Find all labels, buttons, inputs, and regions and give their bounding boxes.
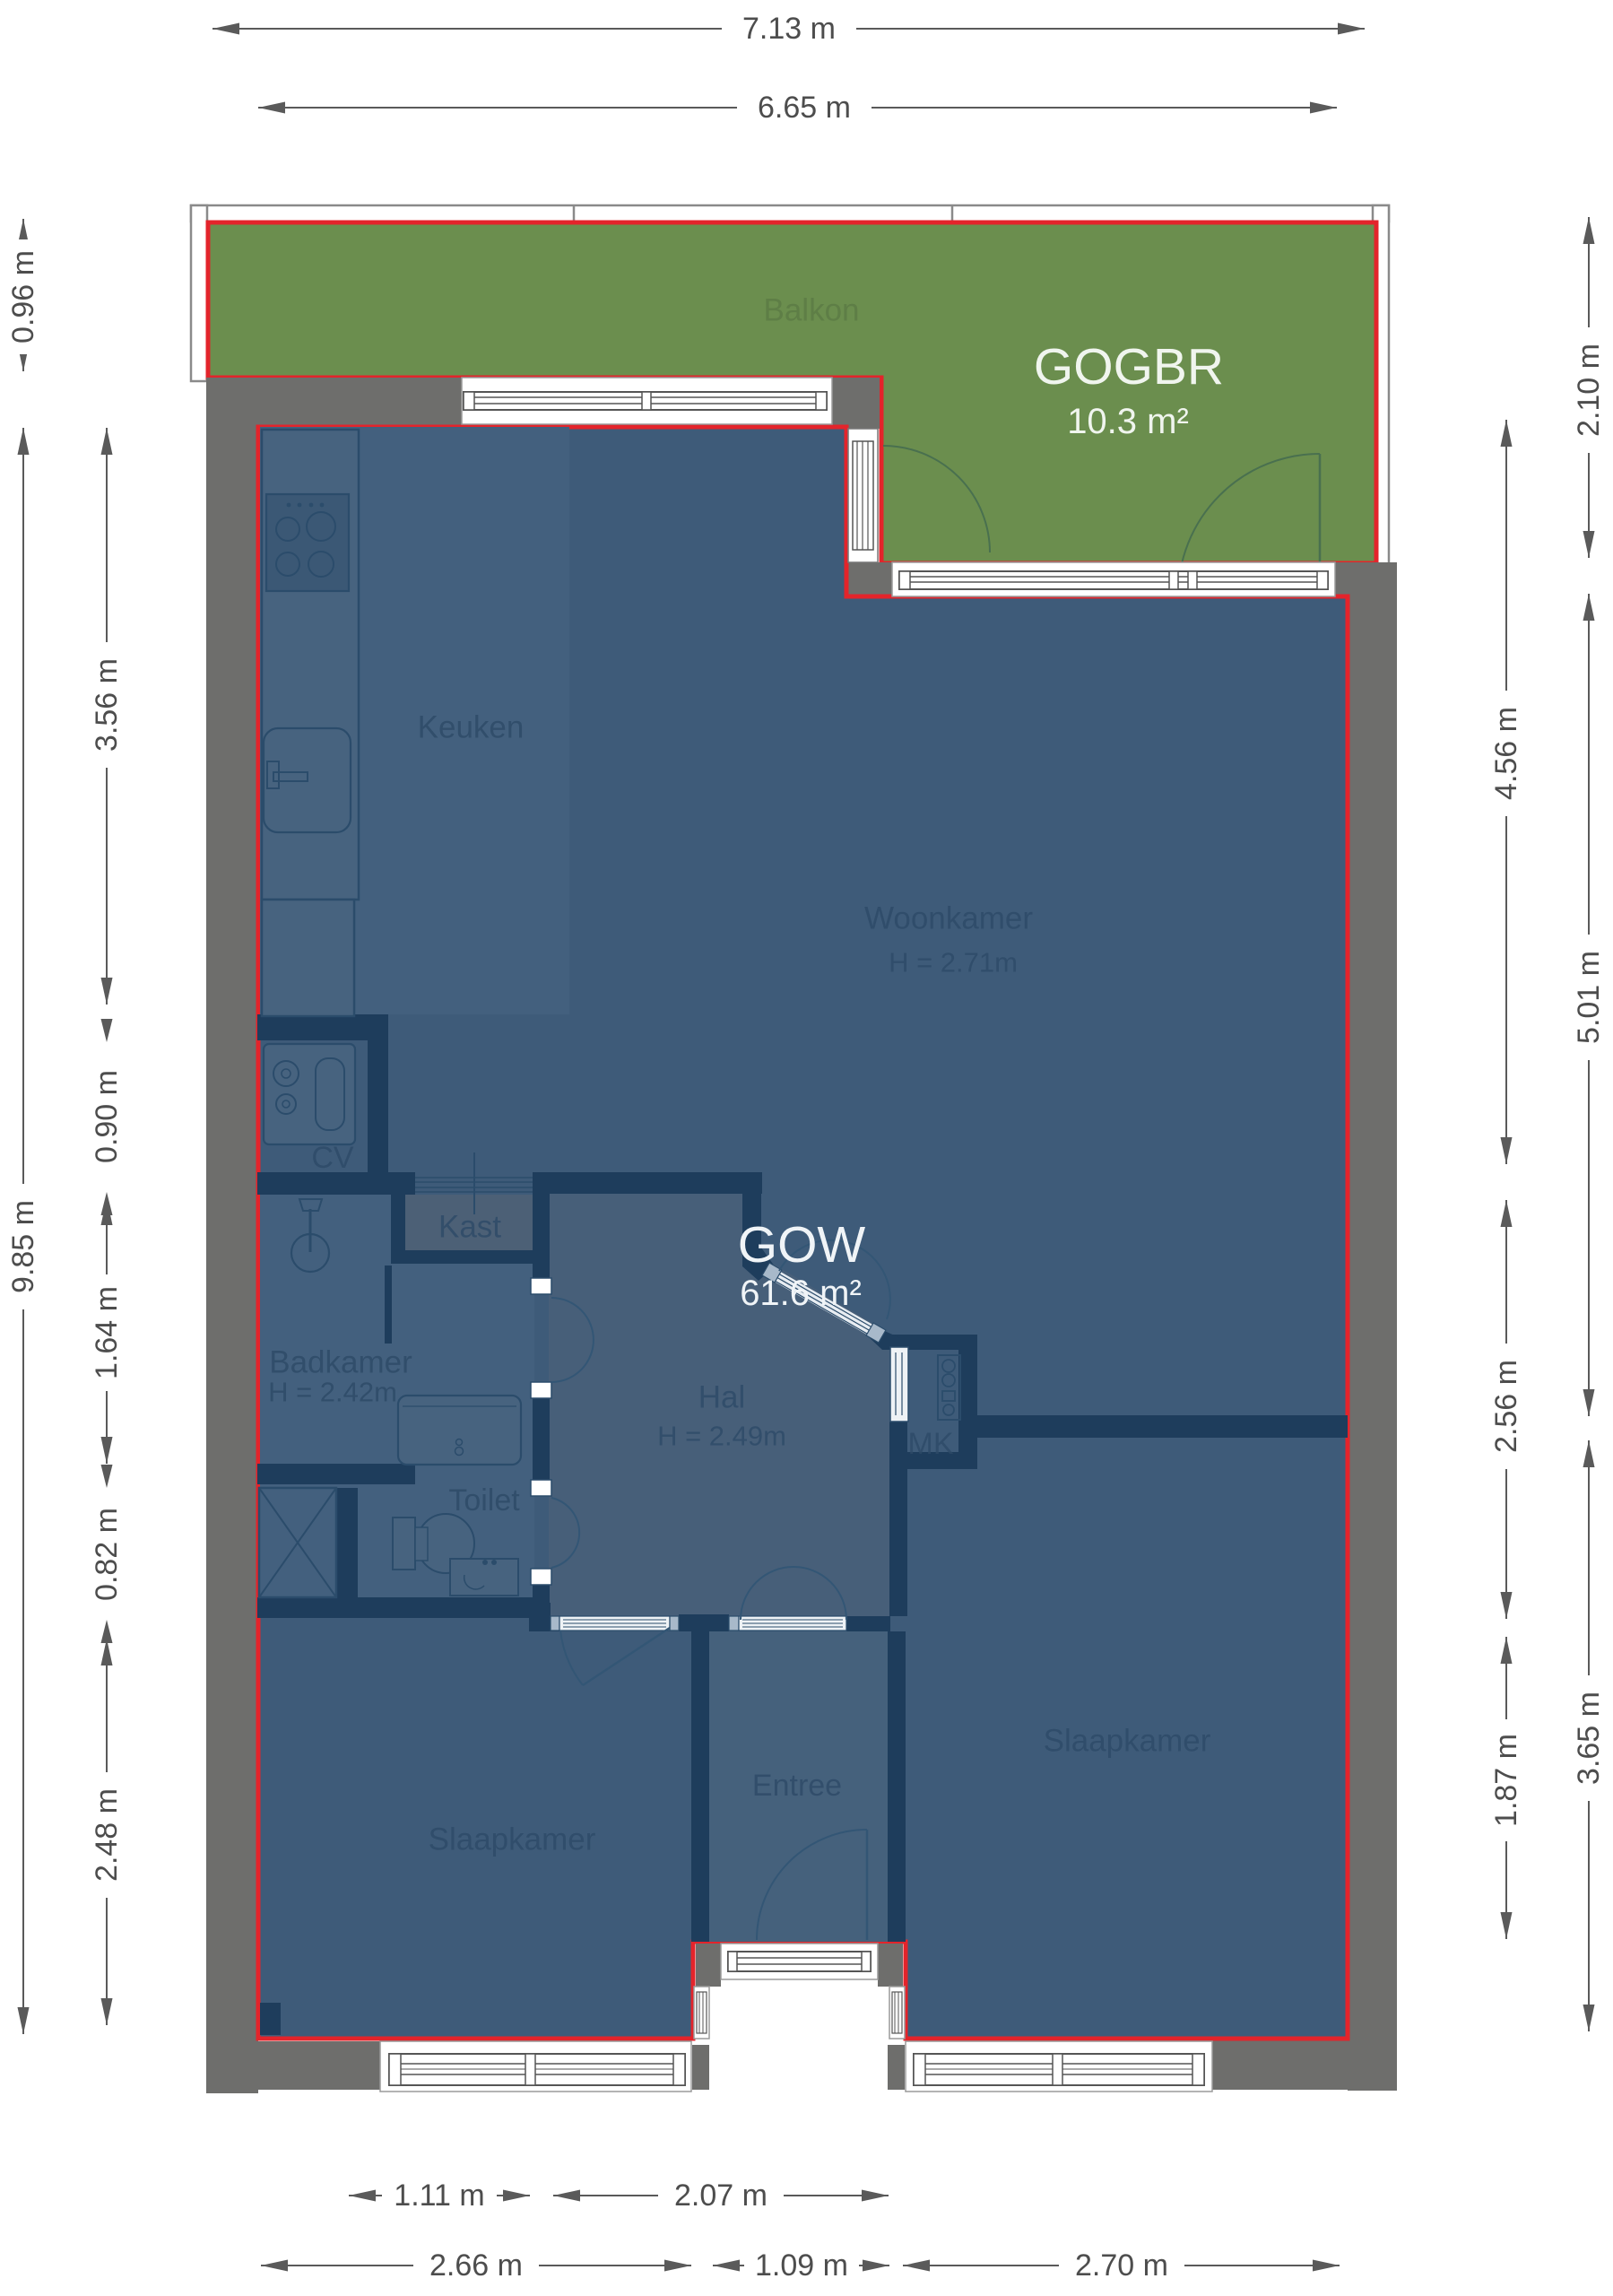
svg-text:1.64 m: 1.64 m — [90, 1286, 124, 1379]
svg-text:Slaapkamer: Slaapkamer — [1044, 1724, 1211, 1759]
svg-text:61.6 m²: 61.6 m² — [740, 1274, 862, 1313]
svg-text:2.07 m: 2.07 m — [674, 2179, 767, 2213]
svg-text:3.56 m: 3.56 m — [90, 658, 124, 752]
svg-text:Badkamer: Badkamer — [269, 1345, 412, 1380]
svg-text:Kast: Kast — [438, 1210, 501, 1245]
svg-text:7.13 m: 7.13 m — [742, 12, 836, 46]
svg-text:H = 2.42m: H = 2.42m — [268, 1377, 397, 1408]
svg-text:5.01 m: 5.01 m — [1572, 951, 1606, 1044]
svg-text:2.66 m: 2.66 m — [429, 2248, 523, 2283]
svg-text:2.10 m: 2.10 m — [1572, 344, 1606, 437]
svg-text:2.48 m: 2.48 m — [90, 1788, 124, 1882]
svg-text:1.87 m: 1.87 m — [1489, 1734, 1523, 1827]
svg-text:Slaapkamer: Slaapkamer — [429, 1822, 596, 1857]
svg-text:2.56 m: 2.56 m — [1489, 1360, 1523, 1453]
svg-text:0.96 m: 0.96 m — [6, 250, 40, 344]
svg-text:H = 2.71m: H = 2.71m — [889, 947, 1018, 978]
svg-text:MK: MK — [908, 1427, 954, 1461]
svg-text:GOW: GOW — [738, 1216, 866, 1274]
svg-text:6.65 m: 6.65 m — [758, 91, 851, 125]
svg-text:10.3 m²: 10.3 m² — [1067, 402, 1189, 441]
svg-text:4.56 m: 4.56 m — [1489, 707, 1523, 800]
svg-text:0.90 m: 0.90 m — [90, 1070, 124, 1163]
svg-text:1.09 m: 1.09 m — [755, 2248, 848, 2283]
svg-text:Hal: Hal — [698, 1380, 746, 1415]
svg-text:9.85 m: 9.85 m — [6, 1200, 40, 1293]
svg-text:GOGBR: GOGBR — [1034, 338, 1224, 396]
svg-text:Woonkamer: Woonkamer — [864, 901, 1033, 936]
svg-text:Toilet: Toilet — [448, 1483, 520, 1518]
svg-text:2.70 m: 2.70 m — [1075, 2248, 1168, 2283]
svg-text:Balkon: Balkon — [763, 293, 859, 328]
svg-text:H = 2.49m: H = 2.49m — [657, 1421, 786, 1452]
svg-text:1.11 m: 1.11 m — [394, 2179, 484, 2213]
svg-text:0.82 m: 0.82 m — [90, 1508, 124, 1601]
svg-text:3.65 m: 3.65 m — [1572, 1692, 1606, 1785]
svg-text:Keuken: Keuken — [418, 710, 525, 745]
svg-text:Entree: Entree — [752, 1769, 842, 1803]
svg-text:CV: CV — [311, 1141, 354, 1175]
